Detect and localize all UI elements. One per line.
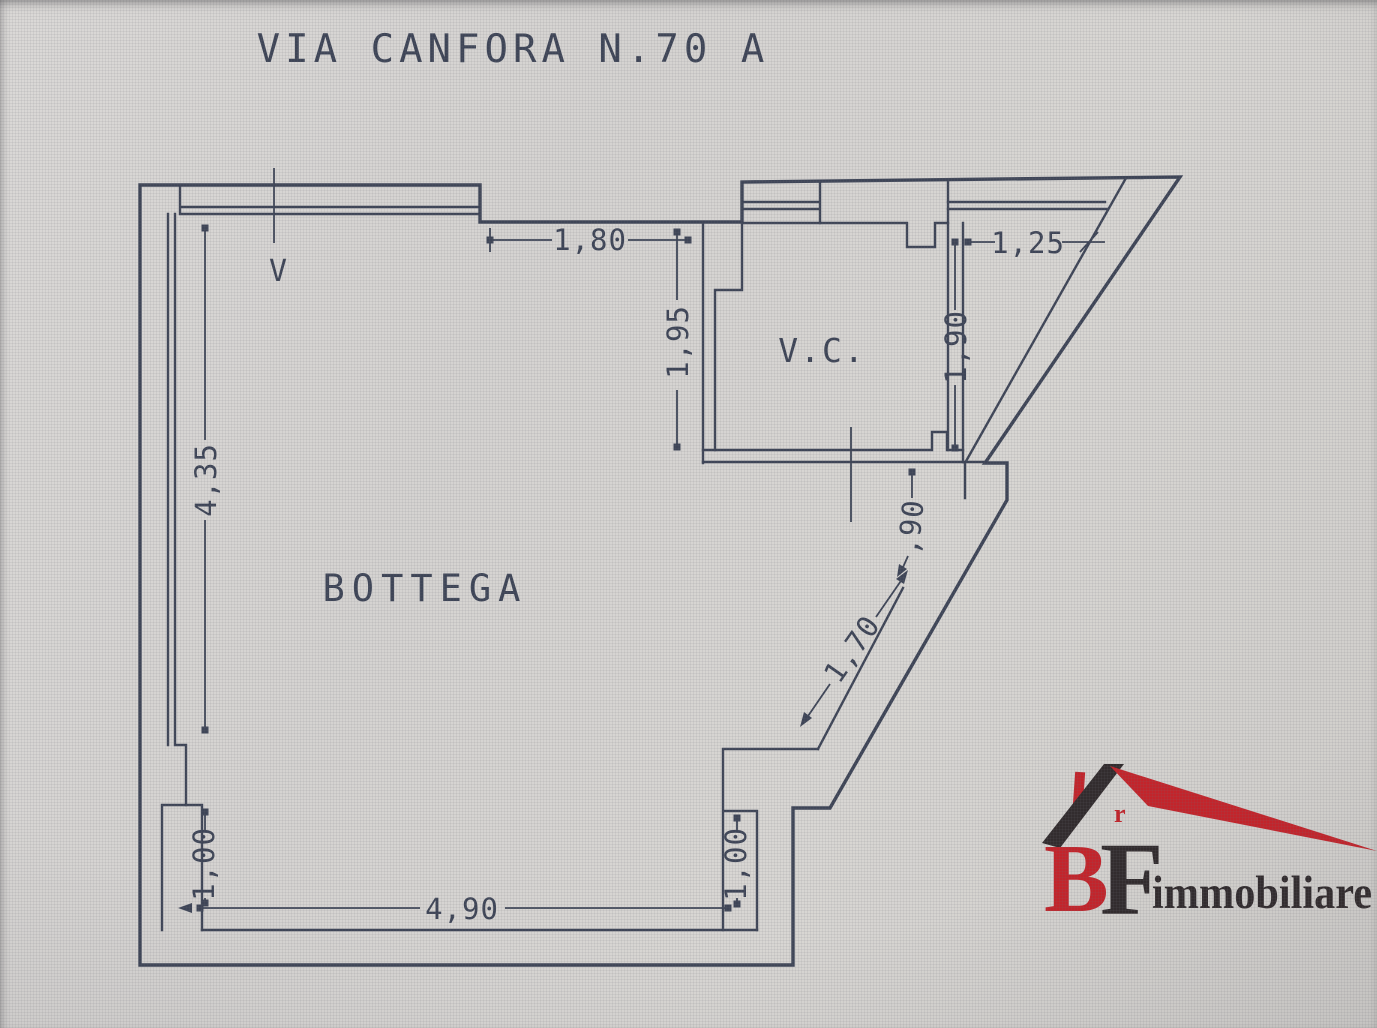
room-label-wc: V.C. [778, 331, 865, 370]
room-label-bottega: BOTTEGA [323, 567, 528, 610]
dim-label-195: 1,95 [661, 305, 695, 379]
agency-logo: r B F immobiliare [1042, 764, 1377, 937]
plan-title: VIA CANFORA N.70 A [257, 27, 770, 72]
dim-top-window: 1,80 [487, 223, 692, 257]
dim-left-pier: 1,00 [187, 809, 221, 907]
wc-south-wall [703, 432, 985, 462]
photographed-floorplan-screen: VIA CANFORA N.70 A 1 [0, 0, 1377, 1028]
left-window-lines [168, 214, 186, 805]
floor-plan-svg: VIA CANFORA N.70 A 1 [0, 0, 1377, 1028]
logo-wordmark: immobiliare [1152, 867, 1372, 919]
dim-bottom-pier: 1,00 [719, 815, 753, 908]
vent-label: V [269, 254, 287, 289]
dim-label-180: 1,80 [553, 223, 627, 257]
dim-wc-left: 1,95 [661, 229, 695, 451]
walls [140, 177, 1180, 965]
dim-label-170: 1,70 [817, 609, 887, 689]
wc-west-wall [703, 222, 742, 463]
outer-wall [140, 177, 1180, 965]
dim-label-190: 1,90 [939, 310, 973, 384]
dim-wc-right: 1,90 [939, 239, 973, 452]
dim-label-125: 1,25 [991, 226, 1065, 260]
top-window-lines [180, 185, 480, 214]
dim-left-wall: 4,35 [189, 225, 223, 734]
dim-label-90: ,90 [891, 498, 931, 557]
diagonal-wall-inner [818, 178, 1126, 749]
dim-label-100-left: 1,00 [187, 827, 221, 901]
logo-letter-b: B [1044, 825, 1109, 932]
dim-label-100-bottom: 1,00 [719, 827, 753, 901]
dim-bottom-wall: 4,90 [178, 892, 732, 926]
dim-label-490: 4,90 [425, 892, 499, 926]
wc-north-windows [742, 182, 1108, 223]
dim-entrance-door: ,90 [891, 469, 931, 578]
dim-label-435: 4,35 [189, 443, 223, 517]
wc-north-wall [742, 223, 948, 247]
